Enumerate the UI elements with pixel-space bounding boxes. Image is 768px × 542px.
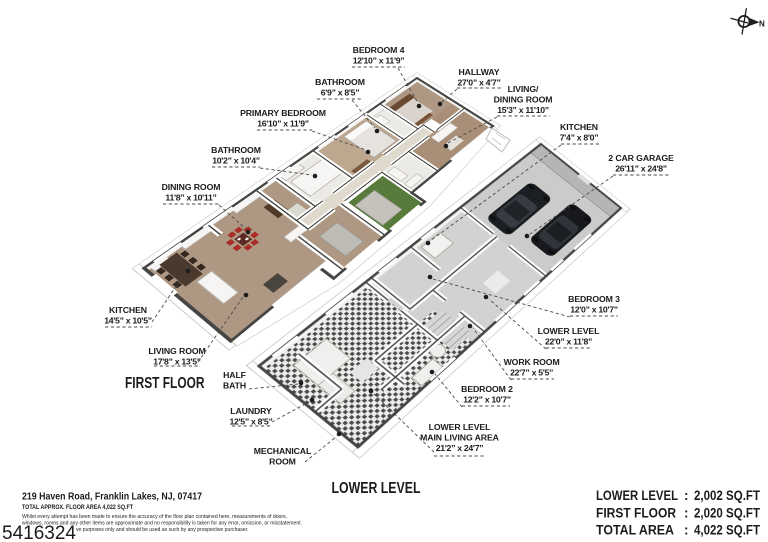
svg-text:Whilst every attempt has been: Whilst every attempt has been made to en…	[22, 514, 287, 520]
svg-text:2,002 SQ.FT: 2,002 SQ.FT	[694, 488, 761, 503]
svg-text:16'10” x 11'9”: 16'10” x 11'9”	[257, 119, 309, 129]
svg-text:21'2” x 24'7”: 21'2” x 24'7”	[436, 443, 484, 453]
svg-text:LOWER LEVEL: LOWER LEVEL	[429, 422, 491, 432]
svg-text:LOWER LEVEL: LOWER LEVEL	[538, 326, 600, 336]
svg-text:DINING ROOM: DINING ROOM	[162, 182, 221, 192]
svg-text:12'5” x 8'5”: 12'5” x 8'5”	[229, 417, 272, 427]
svg-text:FIRST FLOOR: FIRST FLOOR	[596, 506, 676, 521]
svg-text:26'11” x 24'8”: 26'11” x 24'8”	[615, 164, 667, 174]
svg-text:10'2” x 10'4”: 10'2” x 10'4”	[212, 156, 260, 166]
svg-text:2,020 SQ.FT: 2,020 SQ.FT	[694, 506, 761, 521]
svg-text:LOWER LEVEL: LOWER LEVEL	[332, 480, 421, 497]
svg-text:TOTAL AREA: TOTAL AREA	[596, 523, 674, 538]
svg-text:14'5” x 10'5”: 14'5” x 10'5”	[104, 316, 152, 326]
svg-text:BEDROOM 4: BEDROOM 4	[353, 45, 405, 55]
svg-text:BATH: BATH	[223, 381, 246, 391]
svg-text::: :	[684, 506, 689, 521]
svg-text:LOWER LEVEL: LOWER LEVEL	[596, 488, 678, 503]
svg-text:ve purposes only and should be: ve purposes only and should be used as s…	[76, 527, 248, 533]
svg-text:27'0” x 4'7”: 27'0” x 4'7”	[457, 78, 500, 88]
svg-text:15'3” x 11'10”: 15'3” x 11'10”	[497, 105, 549, 115]
svg-text:7'4” x 8'0”: 7'4” x 8'0”	[560, 133, 599, 143]
svg-text:MAIN LIVING AREA: MAIN LIVING AREA	[420, 433, 500, 443]
svg-text:BEDROOM 2: BEDROOM 2	[461, 384, 513, 394]
svg-text:12'0” x 10'7”: 12'0” x 10'7”	[570, 305, 618, 315]
svg-text:12'10” x 11'9”: 12'10” x 11'9”	[353, 56, 405, 66]
svg-text::: :	[684, 488, 689, 503]
svg-text:22'0” x 11'8”: 22'0” x 11'8”	[545, 337, 592, 347]
svg-text:N: N	[759, 20, 765, 29]
svg-text:ROOM: ROOM	[269, 457, 296, 467]
svg-text:DINING ROOM: DINING ROOM	[494, 95, 553, 105]
svg-text:LIVING ROOM: LIVING ROOM	[148, 346, 205, 356]
svg-text:MECHANICAL: MECHANICAL	[254, 446, 312, 456]
svg-text:17'8” x 13'5”: 17'8” x 13'5”	[153, 357, 201, 367]
svg-text:FIRST FLOOR: FIRST FLOOR	[125, 375, 205, 392]
svg-text:KITCHEN: KITCHEN	[109, 305, 147, 315]
svg-text:BATHROOM: BATHROOM	[315, 77, 365, 87]
svg-text:KITCHEN: KITCHEN	[560, 122, 598, 132]
svg-text:219 Haven Road, Franklin Lakes: 219 Haven Road, Franklin Lakes, NJ, 0741…	[22, 492, 202, 503]
svg-text:5416324: 5416324	[2, 523, 76, 542]
svg-text:BEDROOM 3: BEDROOM 3	[568, 294, 620, 304]
svg-text:22'7” x 5'5”: 22'7” x 5'5”	[510, 368, 553, 378]
svg-text:TOTAL APPROX. FLOOR AREA 4,022: TOTAL APPROX. FLOOR AREA 4,022 SQ.FT	[22, 504, 133, 511]
svg-text:WORK ROOM: WORK ROOM	[504, 357, 560, 367]
svg-text:12'2” x 10'7”: 12'2” x 10'7”	[463, 395, 511, 405]
svg-text:6'9” x 8'5”: 6'9” x 8'5”	[321, 88, 360, 98]
svg-text:LAUNDRY: LAUNDRY	[230, 406, 272, 416]
svg-text:HALF: HALF	[223, 370, 246, 380]
svg-text:11'8” x 10'11”: 11'8” x 10'11”	[165, 193, 216, 203]
svg-text:PRIMARY BEDROOM: PRIMARY BEDROOM	[240, 108, 326, 118]
svg-text:2 CAR GARAGE: 2 CAR GARAGE	[608, 153, 674, 163]
svg-text:BATHROOM: BATHROOM	[211, 145, 261, 155]
svg-text::: :	[684, 523, 689, 538]
svg-text:4,022 SQ.FT: 4,022 SQ.FT	[694, 523, 761, 538]
svg-text:HALLWAY: HALLWAY	[459, 67, 500, 77]
svg-text:LIVING/: LIVING/	[508, 84, 539, 94]
